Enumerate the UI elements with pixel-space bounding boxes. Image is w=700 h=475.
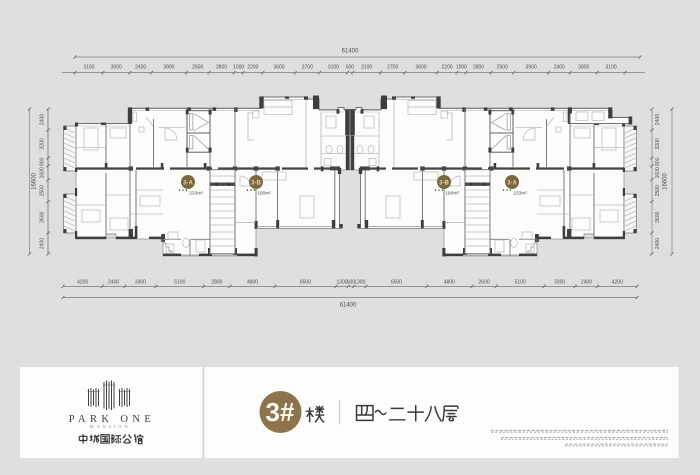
svg-text:3300: 3300: [554, 280, 565, 286]
svg-text:2400: 2400: [554, 64, 565, 70]
svg-text:2500: 2500: [40, 185, 46, 196]
svg-text:16600: 16600: [663, 172, 669, 189]
svg-text:4800: 4800: [247, 280, 258, 286]
svg-text:3000: 3000: [111, 64, 122, 70]
svg-text:1300: 1300: [354, 280, 365, 286]
svg-text:2800: 2800: [211, 280, 222, 286]
svg-text:2600: 2600: [479, 280, 490, 286]
svg-text:900: 900: [40, 157, 46, 166]
svg-text:2500: 2500: [192, 64, 203, 70]
svg-text:2700: 2700: [387, 64, 398, 70]
svg-text:3·B: 3·B: [439, 180, 449, 186]
svg-text:1000: 1000: [456, 64, 467, 70]
svg-text:3600: 3600: [40, 212, 46, 223]
svg-text:3600: 3600: [415, 64, 426, 70]
svg-text:2800: 2800: [216, 64, 227, 70]
svg-text:3900: 3900: [526, 64, 537, 70]
svg-text:2200: 2200: [442, 64, 453, 70]
svg-text:3100: 3100: [606, 64, 617, 70]
svg-text:2400: 2400: [40, 114, 46, 125]
svg-text:190m²: 190m²: [257, 190, 271, 196]
svg-text:2400: 2400: [135, 64, 146, 70]
svg-text:3·A: 3·A: [507, 180, 517, 186]
svg-text:MANSION: MANSION: [89, 424, 130, 429]
svg-text:3100: 3100: [361, 64, 372, 70]
svg-text:2400: 2400: [108, 280, 119, 286]
svg-text:2800: 2800: [473, 64, 484, 70]
svg-text:2400: 2400: [655, 238, 661, 249]
svg-text:1000: 1000: [233, 64, 244, 70]
svg-text:3900: 3900: [163, 64, 174, 70]
svg-text:2500: 2500: [497, 64, 508, 70]
svg-text:6500: 6500: [391, 280, 402, 286]
svg-text:4200: 4200: [612, 280, 623, 286]
svg-text:3·A: 3·A: [183, 180, 193, 186]
svg-text:3300: 3300: [135, 280, 146, 286]
svg-text:3100: 3100: [83, 64, 94, 70]
svg-text:3100: 3100: [328, 64, 339, 70]
svg-text:2400: 2400: [655, 114, 661, 125]
svg-text:3200: 3200: [40, 138, 46, 149]
svg-text:233m²: 233m²: [513, 190, 527, 196]
svg-text:1600: 1600: [40, 167, 46, 178]
svg-text:900: 900: [655, 157, 661, 166]
svg-text:3000: 3000: [578, 64, 589, 70]
svg-text:2700: 2700: [302, 64, 313, 70]
svg-text:2500: 2500: [655, 185, 661, 196]
svg-text:3#: 3#: [266, 397, 295, 427]
svg-text:2200: 2200: [247, 64, 258, 70]
svg-text:61400: 61400: [342, 49, 359, 55]
svg-text:4200: 4200: [77, 280, 88, 286]
svg-text:16600: 16600: [32, 172, 38, 189]
svg-text:3600: 3600: [273, 64, 284, 70]
svg-text:3·B: 3·B: [251, 180, 261, 186]
svg-text:3600: 3600: [655, 212, 661, 223]
svg-text:6500: 6500: [300, 280, 311, 286]
svg-text:600: 600: [346, 64, 355, 70]
svg-text:2400: 2400: [40, 238, 46, 249]
svg-text:5100: 5100: [174, 280, 185, 286]
svg-text:233m²: 233m²: [189, 190, 203, 196]
svg-text:4800: 4800: [444, 280, 455, 286]
svg-text:190m²: 190m²: [445, 190, 459, 196]
svg-text:3200: 3200: [655, 138, 661, 149]
svg-text:2400: 2400: [581, 280, 592, 286]
svg-text:5100: 5100: [515, 280, 526, 286]
svg-text:61400: 61400: [340, 303, 357, 309]
svg-text:1600: 1600: [655, 167, 661, 178]
